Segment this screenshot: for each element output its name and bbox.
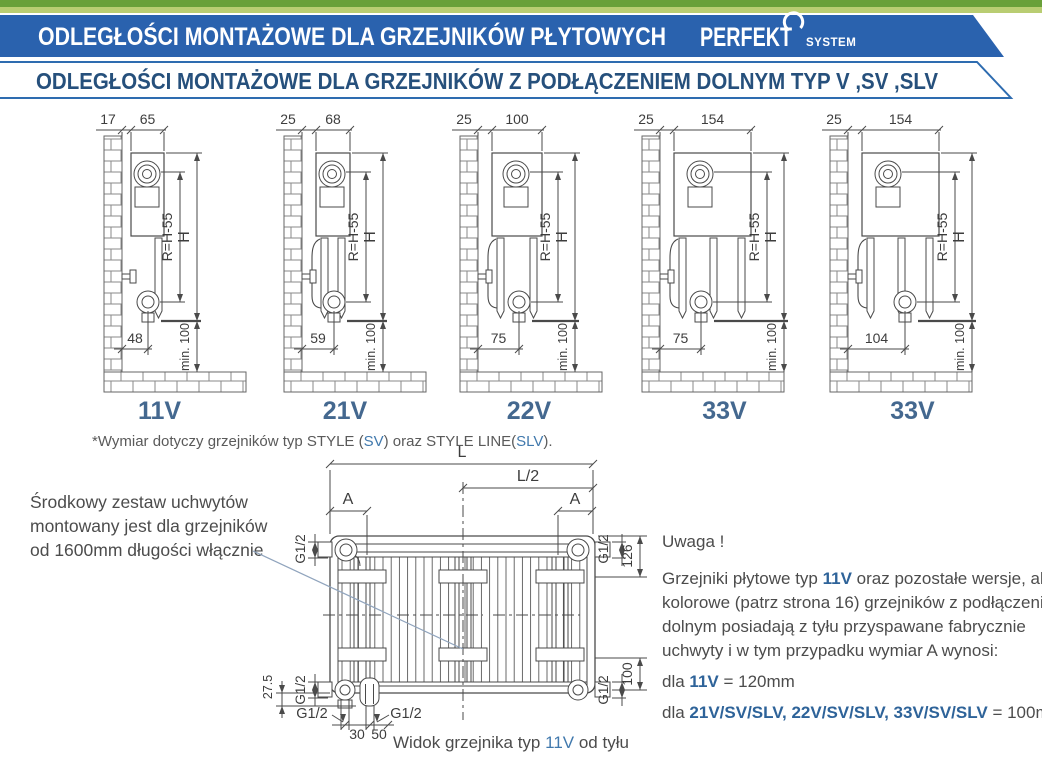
bottom-connection xyxy=(360,678,379,706)
diagram-caption: 33V xyxy=(890,397,935,425)
wall-clip xyxy=(302,274,310,279)
dim-wall-gap: 17 xyxy=(100,111,116,127)
annotation-line: Środkowy zestaw uchwytów xyxy=(30,490,267,514)
dim-A-left: A xyxy=(343,491,354,508)
dim-r: R=H-55 xyxy=(345,212,361,261)
brick-wall xyxy=(460,136,478,392)
dim-min100: min. 100 xyxy=(765,323,779,371)
notice-title: Uwaga ! xyxy=(662,530,1042,554)
dim-h: H xyxy=(763,231,780,243)
diagram-11v: 1765R=H-55Hmin. 1004811V xyxy=(62,106,262,432)
dim-offset: 59 xyxy=(310,330,326,346)
section-title: ODLEGŁOŚCI MONTAŻOWE DLA GRZEJNIKÓW Z PO… xyxy=(36,67,938,94)
g12-label-left: G1/2 xyxy=(296,706,327,722)
diagram-22v: 25100R=H-55Hmin. 1007522V xyxy=(418,106,618,432)
dim-offset: 75 xyxy=(491,330,507,346)
catalog-page: ODLEGŁOŚCI MONTAŻOWE DLA GRZEJNIKÓW PŁYT… xyxy=(0,0,1042,768)
dim-275: 27.5 xyxy=(261,675,275,699)
wall-clip xyxy=(122,274,130,279)
dim-100: 100 xyxy=(619,662,635,686)
annotation-line: montowany jest dla grzejników xyxy=(30,514,267,538)
dim-a-11v: dla 11V = 120mm xyxy=(662,670,1042,694)
dim-offset: 48 xyxy=(127,330,143,346)
wall-clip xyxy=(848,274,856,279)
dim-offset: 104 xyxy=(865,330,889,346)
notice-block: Uwaga ! Grzejniki płytowe typ 11V oraz p… xyxy=(662,530,1042,725)
logo-perfekt: PERFEKT xyxy=(700,22,792,52)
dim-wall-gap: 25 xyxy=(826,111,842,127)
notice-paragraph: Grzejniki płytowe typ 11V oraz pozostałe… xyxy=(662,567,1042,663)
brick-floor xyxy=(284,372,426,392)
dim-min100: min. 100 xyxy=(364,323,378,371)
brick-wall xyxy=(830,136,848,392)
dim-a-others: dla 21V/SV/SLV, 22V/SV/SLV, 33V/SV/SLV =… xyxy=(662,701,1042,725)
brick-floor xyxy=(830,372,972,392)
dim-h: H xyxy=(554,231,571,243)
dim-offset: 75 xyxy=(673,330,689,346)
dim-g12-tr: G1/2 xyxy=(596,534,611,563)
back-view-caption: Widok grzejnika typ 11V od tyłu xyxy=(393,733,629,752)
dim-wall-gap: 25 xyxy=(280,111,296,127)
diagram-caption: 22V xyxy=(507,397,552,425)
brick-wall xyxy=(104,136,122,392)
dim-g12-tl: G1/2 xyxy=(293,534,308,563)
dim-depth: 100 xyxy=(505,111,529,127)
logo-system: SYSTEM xyxy=(806,37,856,49)
dim-30: 30 xyxy=(349,726,365,742)
brick-wall xyxy=(284,136,302,392)
dim-126: 126 xyxy=(619,544,635,568)
dim-depth: 68 xyxy=(325,111,341,127)
brick-floor xyxy=(642,372,784,392)
brick-floor xyxy=(460,372,602,392)
dim-L2: L/2 xyxy=(517,468,539,485)
brick-floor xyxy=(104,372,246,392)
wall-clip xyxy=(660,274,668,279)
dim-50: 50 xyxy=(371,726,387,742)
diagram-21v: 2568R=H-55Hmin. 1005921V xyxy=(242,106,442,432)
annotation-line: od 1600mm długości włącznie xyxy=(30,538,267,562)
dim-min100: min. 100 xyxy=(953,323,967,371)
dim-depth: 65 xyxy=(140,111,156,127)
dim-min100: min. 100 xyxy=(178,323,192,371)
dim-wall-gap: 25 xyxy=(638,111,654,127)
dim-A-right: A xyxy=(570,491,581,508)
dim-L: L xyxy=(458,444,467,461)
diagram-caption: 33V xyxy=(702,397,747,425)
diagram-caption: 21V xyxy=(323,397,368,425)
g12-label-right: G1/2 xyxy=(390,706,421,722)
diagram-33v-2: 25154R=H-55Hmin. 10010433V xyxy=(788,106,988,432)
page-title: ODLEGŁOŚCI MONTAŻOWE DLA GRZEJNIKÓW PŁYT… xyxy=(38,21,666,51)
diagram-caption: 11V xyxy=(138,397,181,425)
green-bar-light xyxy=(0,7,1042,13)
dim-h: H xyxy=(176,231,193,243)
green-bar-dark xyxy=(0,0,1042,7)
header: ODLEGŁOŚCI MONTAŻOWE DLA GRZEJNIKÓW PŁYT… xyxy=(0,0,1042,100)
dim-r: R=H-55 xyxy=(934,212,950,261)
wall-clip xyxy=(478,274,486,279)
dim-g12-bl: G1/2 xyxy=(293,675,308,704)
diagram-33v-1: 25154R=H-55Hmin. 1007533V xyxy=(600,106,800,432)
dim-g12-br: G1/2 xyxy=(596,675,611,704)
dim-depth: 154 xyxy=(701,111,725,127)
brick-wall xyxy=(642,136,660,392)
dim-min100: min. 100 xyxy=(556,323,570,371)
dim-r: R=H-55 xyxy=(746,212,762,261)
dim-wall-gap: 25 xyxy=(456,111,472,127)
dim-h: H xyxy=(362,231,379,243)
back-view-drawing: LL/2AAG1/2G1/2G1/2G1/212610027.53050G1/2… xyxy=(248,438,668,768)
dim-h: H xyxy=(951,231,968,243)
bracket-annotation: Środkowy zestaw uchwytów montowany jest … xyxy=(30,490,267,562)
dim-depth: 154 xyxy=(889,111,913,127)
dim-r: R=H-55 xyxy=(159,212,175,261)
dim-r: R=H-55 xyxy=(537,212,553,261)
